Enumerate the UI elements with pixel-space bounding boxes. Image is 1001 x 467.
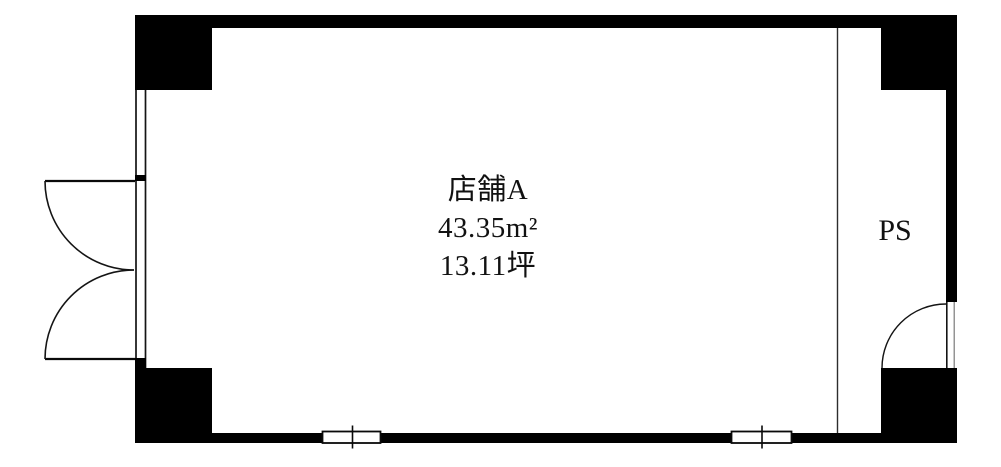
door-frame-cap-bottom xyxy=(135,358,146,368)
window-left xyxy=(323,426,381,449)
top-wall xyxy=(135,15,957,28)
pipe-space-label: PS xyxy=(855,212,935,249)
entrance-double-door xyxy=(45,181,135,359)
column-top-right xyxy=(881,15,957,90)
door-frame-cap-top xyxy=(135,175,146,181)
floor-plan: 店舗A 43.35m² 13.11坪 PS xyxy=(0,0,1001,467)
right-wall xyxy=(946,90,957,302)
column-bottom-right xyxy=(881,368,957,443)
door-swing-arc-bottom xyxy=(45,270,134,359)
door-swing-arc-top xyxy=(45,181,134,270)
ps-door-swing-arc xyxy=(882,304,946,368)
column-bottom-left xyxy=(135,368,212,443)
window-right xyxy=(732,426,792,449)
unit-area-sqm: 43.35m² xyxy=(363,209,613,247)
unit-label: 店舗A 43.35m² 13.11坪 xyxy=(363,171,613,285)
unit-name: 店舗A xyxy=(363,171,613,209)
left-wall xyxy=(135,90,146,368)
unit-area-tsubo: 13.11坪 xyxy=(363,247,613,285)
column-top-left xyxy=(135,15,212,90)
ps-door xyxy=(882,302,955,368)
window-left-frame xyxy=(323,432,381,444)
